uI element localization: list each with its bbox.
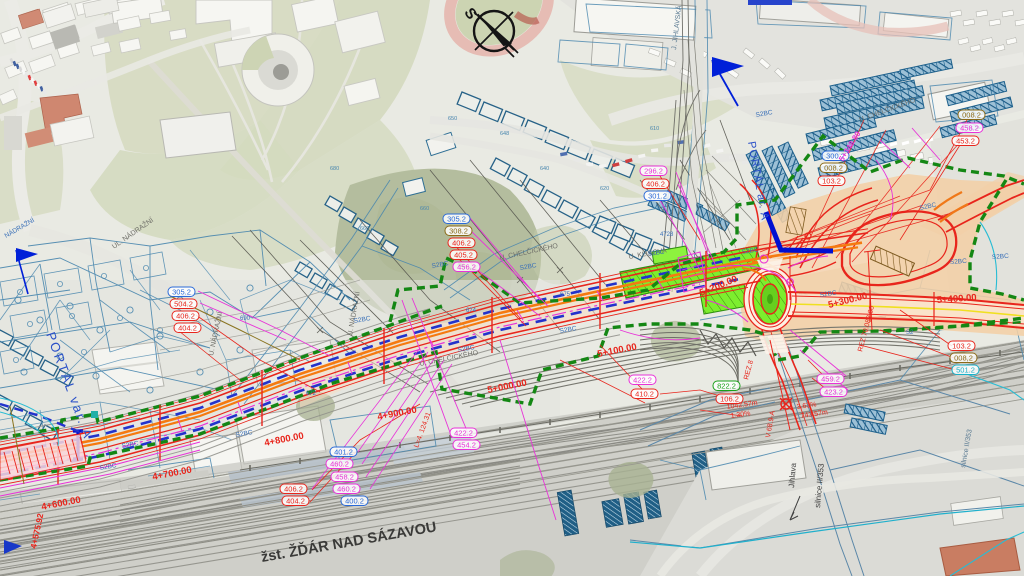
svg-text:301.2: 301.2 <box>648 191 667 200</box>
svg-text:305.2: 305.2 <box>447 214 466 223</box>
svg-text:504.2: 504.2 <box>174 299 193 308</box>
svg-text:672: 672 <box>306 391 317 397</box>
svg-text:453.2: 453.2 <box>956 136 975 145</box>
svg-text:103.2: 103.2 <box>952 341 971 350</box>
svg-text:690: 690 <box>240 316 251 322</box>
svg-text:648: 648 <box>500 131 509 137</box>
svg-text:401.2: 401.2 <box>334 447 353 456</box>
svg-text:423.2: 423.2 <box>824 387 843 396</box>
svg-text:610: 610 <box>650 126 659 132</box>
svg-text:305.2: 305.2 <box>172 287 191 296</box>
svg-text:460.2: 460.2 <box>330 459 349 468</box>
svg-text:400.2: 400.2 <box>345 496 364 505</box>
svg-text:456.2: 456.2 <box>457 262 476 271</box>
svg-text:422.2: 422.2 <box>633 375 652 384</box>
svg-text:674: 674 <box>466 308 477 314</box>
svg-text:S2BC: S2BC <box>950 258 968 266</box>
svg-text:406.2: 406.2 <box>284 484 303 493</box>
svg-text:660: 660 <box>420 206 429 212</box>
svg-text:410.2: 410.2 <box>635 389 654 398</box>
svg-text:008.2: 008.2 <box>824 163 843 172</box>
svg-text:666: 666 <box>360 226 369 232</box>
svg-text:422.2: 422.2 <box>454 428 473 437</box>
svg-text:501.2: 501.2 <box>956 365 975 374</box>
svg-text:308.2: 308.2 <box>449 226 468 235</box>
svg-text:640: 640 <box>540 166 549 172</box>
svg-text:008,2: 008,2 <box>954 353 973 362</box>
svg-text:454.2: 454.2 <box>457 440 476 449</box>
svg-text:405.2: 405.2 <box>454 250 473 259</box>
svg-text:406.2: 406.2 <box>452 238 471 247</box>
svg-text:008.2: 008.2 <box>962 110 981 119</box>
svg-text:460.2: 460.2 <box>337 484 356 493</box>
svg-text:675: 675 <box>560 292 571 298</box>
svg-text:650: 650 <box>448 116 457 122</box>
svg-text:404.2: 404.2 <box>178 323 197 332</box>
svg-text:406.2: 406.2 <box>646 179 665 188</box>
svg-text:459.2: 459.2 <box>821 374 840 383</box>
svg-text:458.2: 458.2 <box>335 472 354 481</box>
svg-text:822.2: 822.2 <box>717 381 736 390</box>
svg-text:4728: 4728 <box>660 232 674 238</box>
svg-text:296.2: 296.2 <box>644 166 663 175</box>
svg-text:406.2: 406.2 <box>176 311 195 320</box>
svg-text:S2BC: S2BC <box>992 253 1010 261</box>
svg-text:458.2: 458.2 <box>960 123 979 132</box>
svg-text:S2: S2 <box>906 330 914 336</box>
svg-text:103.2: 103.2 <box>822 176 841 185</box>
svg-text:404.2: 404.2 <box>286 496 305 505</box>
svg-text:620: 620 <box>600 186 609 192</box>
svg-text:680: 680 <box>330 166 339 172</box>
